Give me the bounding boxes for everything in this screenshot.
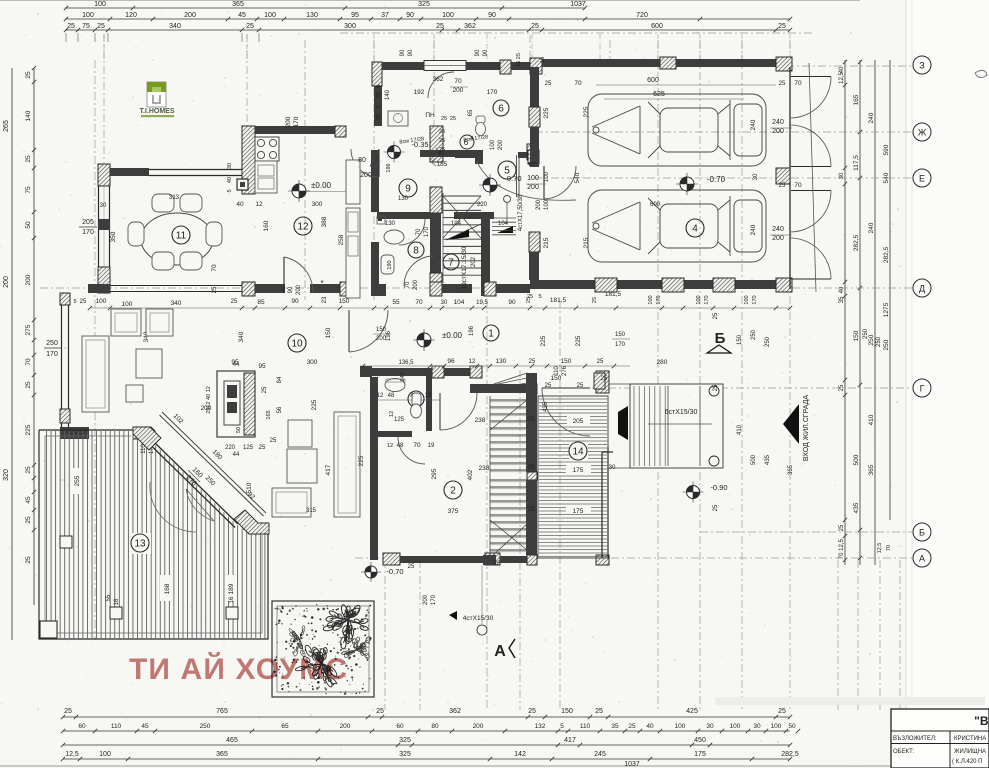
svg-text:181,5: 181,5 — [605, 291, 622, 298]
svg-text:362: 362 — [449, 708, 461, 715]
svg-text:25: 25 — [439, 147, 445, 153]
svg-text:25: 25 — [529, 359, 536, 365]
svg-text:240: 240 — [750, 224, 757, 235]
svg-text:8: 8 — [413, 246, 419, 257]
svg-text:ЖИЛИЩНА: ЖИЛИЩНА — [954, 749, 986, 755]
svg-text:362: 362 — [464, 23, 476, 30]
svg-text:25: 25 — [713, 384, 719, 391]
svg-text:-0.70: -0.70 — [707, 175, 726, 184]
svg-text:75: 75 — [25, 186, 32, 194]
svg-text:16: 16 — [229, 596, 235, 603]
svg-text:150: 150 — [561, 708, 573, 715]
svg-text:5: 5 — [227, 189, 233, 192]
svg-text:540: 540 — [574, 172, 581, 183]
svg-text:25: 25 — [439, 129, 445, 135]
svg-text:25: 25 — [25, 466, 32, 474]
svg-text:15: 15 — [540, 57, 546, 63]
svg-text:215: 215 — [583, 237, 590, 248]
svg-text:5: 5 — [560, 723, 564, 730]
svg-text:-0.70: -0.70 — [386, 567, 403, 576]
svg-text:202: 202 — [471, 256, 477, 267]
svg-text:150: 150 — [615, 332, 626, 338]
svg-text:600: 600 — [650, 202, 661, 208]
svg-text:25: 25 — [628, 723, 636, 730]
svg-text:140: 140 — [25, 110, 32, 121]
svg-text:185: 185 — [437, 161, 448, 168]
svg-text:5: 5 — [376, 105, 382, 108]
svg-text:КРИСТИНА: КРИСТИНА — [954, 736, 986, 742]
svg-text:а: а — [471, 135, 474, 141]
svg-text:70: 70 — [413, 442, 421, 449]
svg-text:95: 95 — [351, 12, 359, 19]
svg-text:12: 12 — [297, 222, 309, 233]
svg-text:130: 130 — [398, 196, 409, 202]
svg-text:90: 90 — [291, 298, 299, 305]
svg-text:Б: Б — [715, 330, 726, 347]
svg-text:225: 225 — [25, 424, 32, 435]
svg-text:300: 300 — [312, 201, 323, 208]
svg-text:250: 250 — [751, 329, 757, 340]
svg-text:100: 100 — [99, 751, 111, 758]
svg-text:104: 104 — [498, 221, 509, 227]
svg-text:132: 132 — [535, 723, 546, 730]
svg-text:265: 265 — [3, 120, 10, 132]
svg-text:100: 100 — [696, 295, 702, 304]
svg-text:282,5: 282,5 — [781, 751, 799, 758]
svg-text:65: 65 — [281, 723, 289, 730]
svg-text:6стХ15/30: 6стХ15/30 — [665, 409, 698, 416]
svg-text:100: 100 — [648, 295, 654, 304]
svg-text:225: 225 — [540, 335, 547, 346]
svg-text:А: А — [494, 643, 506, 660]
svg-text:55: 55 — [392, 299, 400, 306]
svg-text:282,5: 282,5 — [883, 246, 890, 263]
svg-text:40: 40 — [236, 201, 244, 208]
svg-text:50: 50 — [788, 723, 796, 730]
svg-text:200: 200 — [453, 87, 464, 94]
svg-text:125: 125 — [243, 445, 254, 451]
svg-text:25: 25 — [25, 155, 32, 163]
svg-text:( К.Л.420 П: ( К.Л.420 П — [952, 759, 982, 765]
svg-text:100: 100 — [442, 12, 454, 19]
svg-text:362: 362 — [433, 76, 444, 83]
svg-text:25: 25 — [713, 312, 719, 319]
svg-text:340: 340 — [171, 300, 182, 307]
svg-text:25: 25 — [97, 23, 105, 30]
svg-text:11: 11 — [176, 231, 187, 242]
svg-text:25: 25 — [441, 116, 447, 122]
svg-text:388: 388 — [321, 216, 328, 227]
svg-text:25: 25 — [408, 564, 415, 570]
svg-text:100: 100 — [490, 139, 496, 150]
svg-text:50: 50 — [236, 427, 242, 433]
svg-text:225: 225 — [311, 399, 318, 410]
svg-text:150: 150 — [561, 358, 572, 365]
svg-text:45: 45 — [25, 496, 32, 504]
svg-text:70: 70 — [415, 299, 423, 306]
svg-text:60: 60 — [78, 723, 86, 730]
svg-text:165: 165 — [266, 410, 272, 419]
svg-text:ОБЕКТ:: ОБЕКТ: — [893, 749, 915, 755]
svg-text:25: 25 — [439, 138, 445, 144]
svg-text:150: 150 — [853, 330, 860, 341]
svg-text:Б: Б — [919, 528, 925, 538]
svg-text:19: 19 — [425, 393, 432, 399]
svg-text:1275: 1275 — [883, 302, 890, 317]
svg-text:104: 104 — [454, 299, 465, 306]
svg-text:402: 402 — [467, 469, 474, 480]
svg-text:500: 500 — [751, 454, 757, 465]
svg-text:-0.90: -0.90 — [710, 483, 727, 492]
svg-text:325: 325 — [399, 737, 411, 744]
svg-text:13: 13 — [134, 539, 146, 550]
svg-text:120: 120 — [125, 12, 137, 19]
svg-text:282,5: 282,5 — [853, 234, 860, 251]
svg-text:215: 215 — [543, 237, 550, 248]
svg-text:240: 240 — [772, 119, 784, 126]
svg-text:250: 250 — [876, 336, 882, 347]
svg-text:5: 5 — [376, 84, 382, 87]
svg-text:25: 25 — [545, 383, 552, 389]
svg-text:2512 40 12: 2512 40 12 — [206, 386, 212, 414]
svg-text:417: 417 — [325, 464, 332, 475]
svg-text:Ж: Ж — [918, 128, 927, 138]
svg-text:10стХ17.15/30: 10стХ17.15/30 — [461, 246, 468, 289]
svg-text:600: 600 — [651, 23, 663, 30]
svg-text:320: 320 — [3, 469, 10, 481]
svg-text:25: 25 — [231, 299, 238, 305]
svg-text:4стХ15/30: 4стХ15/30 — [463, 615, 494, 622]
svg-text:44: 44 — [233, 362, 240, 368]
svg-text:1037: 1037 — [624, 761, 640, 768]
svg-text:25: 25 — [376, 708, 384, 715]
svg-text:25: 25 — [713, 504, 719, 511]
svg-text:25: 25 — [212, 286, 218, 293]
svg-text:250: 250 — [200, 723, 211, 730]
svg-text:70: 70 — [454, 78, 462, 85]
svg-text:90: 90 — [288, 286, 294, 293]
svg-text:200: 200 — [772, 128, 784, 135]
svg-text:70: 70 — [574, 80, 582, 87]
svg-text:25: 25 — [601, 376, 608, 382]
svg-text:48: 48 — [388, 393, 395, 399]
svg-text:100: 100 — [730, 723, 741, 730]
svg-text:200: 200 — [184, 12, 196, 19]
svg-text:70: 70 — [25, 358, 32, 366]
svg-text:25: 25 — [25, 71, 32, 79]
svg-text:9: 9 — [405, 184, 411, 195]
svg-text:Д: Д — [919, 284, 925, 294]
svg-text:200: 200 — [498, 139, 504, 150]
svg-text:55: 55 — [106, 594, 112, 601]
svg-text:225: 225 — [358, 455, 365, 466]
svg-text:196: 196 — [469, 325, 475, 336]
svg-text:25: 25 — [779, 81, 786, 87]
svg-text:25: 25 — [839, 524, 845, 531]
svg-text:170: 170 — [752, 295, 758, 304]
svg-text:25: 25 — [262, 386, 268, 393]
svg-text:*: * — [320, 279, 323, 288]
svg-text:250: 250 — [46, 340, 58, 347]
svg-text:ВЪЗЛОЖИТЕЛ:: ВЪЗЛОЖИТЕЛ: — [893, 736, 937, 742]
svg-text:175: 175 — [694, 751, 706, 758]
svg-text:25: 25 — [577, 383, 584, 389]
svg-text:25: 25 — [64, 708, 72, 715]
svg-text:140: 140 — [385, 89, 391, 100]
svg-text:12: 12 — [387, 443, 393, 449]
svg-text:25: 25 — [779, 183, 786, 189]
svg-text:12: 12 — [255, 201, 263, 208]
svg-text:10: 10 — [291, 339, 303, 350]
svg-text:130: 130 — [306, 12, 318, 19]
svg-text:25: 25 — [67, 23, 75, 30]
svg-text:4: 4 — [692, 224, 698, 235]
svg-text:16: 16 — [114, 598, 120, 605]
svg-text:Г: Г — [920, 384, 925, 394]
svg-text:56: 56 — [277, 406, 283, 413]
svg-text:200: 200 — [340, 723, 351, 730]
svg-text:35: 35 — [611, 723, 619, 730]
svg-text:340: 340 — [238, 331, 245, 342]
svg-text:165: 165 — [853, 94, 860, 105]
svg-text:375: 375 — [448, 508, 459, 515]
svg-text:90: 90 — [475, 49, 481, 56]
svg-text:25: 25 — [246, 23, 254, 30]
svg-text:±0.00: ±0.00 — [311, 181, 332, 190]
svg-text:240: 240 — [868, 222, 875, 233]
svg-text:30: 30 — [706, 723, 714, 730]
svg-text:625: 625 — [653, 91, 665, 98]
svg-text:25: 25 — [25, 381, 32, 389]
svg-text:90: 90 — [408, 49, 414, 56]
svg-text:85: 85 — [257, 299, 265, 306]
svg-text:175: 175 — [573, 508, 584, 515]
svg-text:600: 600 — [647, 77, 659, 84]
svg-text:40: 40 — [227, 177, 233, 183]
svg-text:410: 410 — [737, 424, 743, 435]
svg-text:168: 168 — [164, 583, 171, 594]
svg-text:295: 295 — [431, 468, 438, 479]
svg-text:44: 44 — [233, 452, 240, 458]
svg-text:25: 25 — [526, 297, 532, 303]
svg-text:6: 6 — [464, 138, 469, 147]
svg-text:130: 130 — [385, 221, 396, 227]
svg-text:30: 30 — [100, 203, 107, 209]
svg-text:45: 45 — [238, 12, 246, 19]
svg-text:410: 410 — [868, 414, 875, 425]
svg-text:313: 313 — [169, 195, 180, 201]
svg-text:5: 5 — [538, 294, 541, 300]
svg-text:250: 250 — [868, 334, 875, 345]
svg-text:95: 95 — [258, 363, 266, 370]
svg-text:190: 190 — [387, 260, 393, 269]
svg-text:25: 25 — [545, 81, 552, 87]
svg-text:200: 200 — [360, 172, 372, 179]
svg-text:200: 200 — [25, 274, 32, 285]
svg-text:±0.00: ±0.00 — [442, 331, 463, 340]
svg-text:145: 145 — [400, 372, 406, 381]
svg-text:25: 25 — [376, 114, 382, 120]
svg-text:100: 100 — [544, 199, 550, 210]
svg-text:220: 220 — [225, 445, 236, 451]
svg-text:205: 205 — [82, 219, 94, 226]
svg-text:175: 175 — [573, 467, 584, 474]
svg-text:6: 6 — [498, 104, 504, 115]
svg-text:110: 110 — [111, 723, 122, 730]
svg-text:365: 365 — [232, 1, 244, 8]
svg-text:150: 150 — [737, 334, 743, 345]
svg-text:125: 125 — [394, 417, 405, 423]
svg-text:25: 25 — [270, 438, 277, 444]
svg-text:225: 225 — [575, 335, 582, 346]
svg-text:90: 90 — [508, 299, 516, 306]
svg-text:70: 70 — [211, 264, 218, 272]
svg-text:250: 250 — [863, 328, 869, 339]
svg-text:90: 90 — [406, 12, 414, 19]
svg-text:435: 435 — [765, 454, 771, 465]
svg-text:30: 30 — [753, 173, 759, 180]
svg-text:ТИ АЙ ХОУМС: ТИ АЙ ХОУМС — [129, 652, 347, 686]
svg-text:1037: 1037 — [570, 1, 586, 8]
svg-text:196: 196 — [386, 330, 392, 341]
svg-text:170: 170 — [431, 594, 437, 605]
svg-text:100: 100 — [544, 171, 550, 182]
svg-text:200: 200 — [3, 276, 10, 288]
svg-text:280: 280 — [657, 359, 668, 366]
svg-text:90: 90 — [488, 12, 496, 19]
svg-text:240: 240 — [750, 119, 757, 130]
svg-text:200: 200 — [285, 116, 292, 127]
svg-text:170: 170 — [293, 116, 300, 127]
svg-text:80: 80 — [431, 723, 439, 730]
svg-text:26: 26 — [528, 465, 535, 471]
svg-text:60: 60 — [396, 723, 404, 730]
svg-text:300: 300 — [344, 23, 356, 30]
svg-text:45: 45 — [141, 723, 149, 730]
svg-text:136,5: 136,5 — [398, 360, 414, 366]
svg-text:90: 90 — [400, 49, 406, 56]
svg-text:ВХОД ЖИЛ.СГРАДА: ВХОД ЖИЛ.СГРАДА — [803, 395, 810, 461]
svg-text:25: 25 — [531, 23, 539, 30]
svg-text:200: 200 — [772, 235, 784, 242]
svg-text:340: 340 — [169, 23, 181, 30]
svg-text:100: 100 — [82, 12, 94, 19]
svg-text:181,5: 181,5 — [550, 297, 567, 304]
svg-text:425: 425 — [686, 708, 698, 715]
svg-text:1: 1 — [488, 329, 494, 340]
svg-text:75: 75 — [82, 23, 90, 30]
svg-text:170: 170 — [487, 89, 498, 96]
svg-text:200: 200 — [413, 279, 419, 290]
svg-text:25: 25 — [778, 708, 786, 715]
svg-text:25: 25 — [80, 299, 87, 305]
svg-text:25: 25 — [778, 23, 786, 30]
svg-text:255: 255 — [74, 475, 81, 486]
svg-text:238: 238 — [479, 465, 490, 472]
svg-text:-0.70: -0.70 — [504, 174, 521, 183]
svg-text:25: 25 — [25, 556, 32, 564]
svg-text:200: 200 — [296, 284, 302, 295]
svg-text:110: 110 — [554, 366, 560, 376]
svg-text:590: 590 — [883, 144, 890, 155]
svg-text:12,5: 12,5 — [839, 539, 845, 551]
svg-text:435: 435 — [543, 401, 549, 412]
svg-text:170: 170 — [82, 229, 94, 236]
svg-text:90: 90 — [483, 49, 489, 56]
svg-text:189: 189 — [228, 583, 235, 594]
svg-text:186: 186 — [386, 163, 392, 172]
svg-text:70: 70 — [794, 80, 802, 87]
svg-text:12: 12 — [377, 393, 384, 399]
svg-text:30: 30 — [441, 300, 448, 306]
svg-text:65: 65 — [468, 109, 474, 116]
svg-text:220: 220 — [477, 202, 488, 208]
svg-text:250: 250 — [883, 339, 890, 350]
svg-text:100: 100 — [122, 301, 133, 308]
svg-text:258: 258 — [338, 234, 345, 245]
svg-text:225: 225 — [583, 106, 590, 117]
svg-text:4стХ17,50/30: 4стХ17,50/30 — [518, 194, 524, 231]
svg-text:12: 12 — [469, 359, 476, 365]
svg-text:435: 435 — [853, 502, 860, 513]
svg-text:365: 365 — [788, 464, 794, 475]
svg-text:130: 130 — [496, 358, 507, 365]
svg-text:365: 365 — [216, 751, 228, 758]
svg-text:300: 300 — [307, 359, 318, 366]
svg-text:275: 275 — [25, 324, 32, 335]
svg-text:80: 80 — [358, 157, 366, 164]
svg-text:365: 365 — [868, 464, 875, 475]
svg-text:240: 240 — [772, 226, 784, 233]
svg-text:48: 48 — [397, 443, 404, 449]
svg-text:30: 30 — [227, 163, 233, 169]
svg-text:245: 245 — [594, 751, 606, 758]
svg-text:765: 765 — [216, 708, 228, 715]
svg-text:25: 25 — [528, 507, 535, 513]
svg-text:Е: Е — [919, 174, 925, 184]
svg-text:160: 160 — [263, 220, 270, 231]
svg-text:205: 205 — [573, 418, 584, 425]
svg-text:100: 100 — [96, 298, 107, 305]
svg-text:100: 100 — [771, 723, 782, 730]
svg-text:19,5: 19,5 — [476, 300, 488, 306]
svg-text:170: 170 — [656, 295, 662, 304]
svg-text:315: 315 — [306, 508, 317, 514]
svg-text:40: 40 — [646, 723, 654, 730]
svg-text:325: 325 — [399, 751, 411, 758]
svg-text:350: 350 — [110, 231, 117, 242]
svg-text:25: 25 — [376, 92, 382, 98]
svg-text:465: 465 — [226, 737, 238, 744]
svg-text:325: 325 — [418, 1, 430, 8]
svg-text:417: 417 — [564, 737, 576, 744]
svg-text:200: 200 — [527, 184, 539, 191]
svg-text:100: 100 — [264, 12, 276, 19]
svg-text:170: 170 — [615, 342, 626, 348]
svg-text:150: 150 — [339, 298, 350, 305]
svg-text:70: 70 — [405, 281, 411, 288]
svg-text:70: 70 — [886, 545, 892, 551]
svg-text:25: 25 — [25, 516, 32, 524]
svg-text:T.I.HOMES: T.I.HOMES — [139, 108, 174, 115]
svg-text:25: 25 — [528, 708, 536, 715]
svg-text:12,5: 12,5 — [877, 543, 883, 554]
svg-text:225: 225 — [543, 107, 550, 118]
svg-text:З: З — [919, 61, 924, 71]
svg-text:150: 150 — [325, 327, 332, 338]
svg-text:170: 170 — [46, 351, 58, 358]
svg-text:70: 70 — [416, 228, 422, 235]
